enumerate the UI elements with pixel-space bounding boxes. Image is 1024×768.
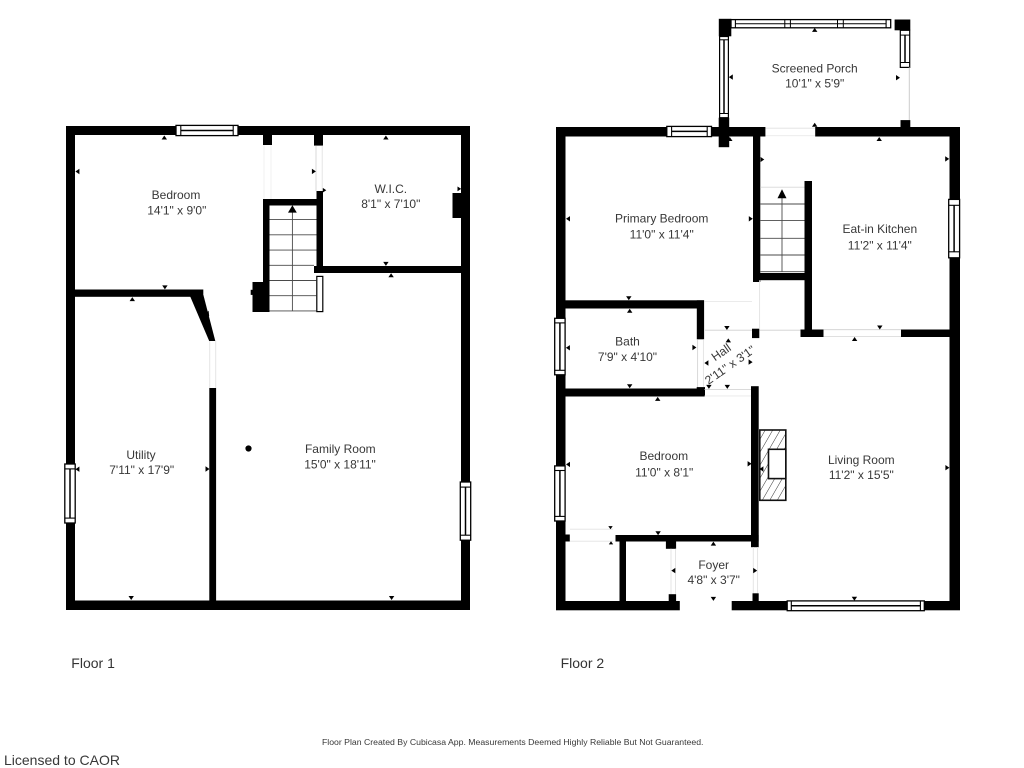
svg-text:Floor 2: Floor 2 <box>561 655 605 671</box>
svg-text:Licensed to CAOR: Licensed to CAOR <box>4 752 120 768</box>
svg-text:15'0" x 18'11": 15'0" x 18'11" <box>304 458 376 472</box>
svg-text:Bedroom: Bedroom <box>152 188 201 202</box>
svg-text:4'8" x 3'7": 4'8" x 3'7" <box>687 573 739 587</box>
svg-text:7'9" x 4'10": 7'9" x 4'10" <box>598 350 657 364</box>
svg-text:11'0" x 8'1": 11'0" x 8'1" <box>635 465 693 479</box>
svg-text:Floor 1: Floor 1 <box>71 655 115 671</box>
svg-text:Eat-in Kitchen: Eat-in Kitchen <box>842 222 917 236</box>
svg-text:Family Room: Family Room <box>305 442 376 456</box>
svg-text:14'1" x 9'0": 14'1" x 9'0" <box>147 204 206 218</box>
svg-text:Primary Bedroom: Primary Bedroom <box>615 212 708 226</box>
svg-text:Bath: Bath <box>615 334 640 348</box>
svg-text:Foyer: Foyer <box>698 558 729 572</box>
svg-text:10'1" x 5'9": 10'1" x 5'9" <box>785 77 844 91</box>
svg-text:11'0" x 11'4": 11'0" x 11'4" <box>630 227 694 241</box>
svg-text:Floor Plan Created By Cubicasa: Floor Plan Created By Cubicasa App. Meas… <box>322 737 703 747</box>
svg-text:Bedroom: Bedroom <box>639 449 688 463</box>
svg-text:11'2" x 15'5": 11'2" x 15'5" <box>829 468 894 482</box>
svg-text:W.I.C.: W.I.C. <box>374 182 407 196</box>
svg-text:Living Room: Living Room <box>828 453 895 467</box>
svg-text:7'11" x 17'9": 7'11" x 17'9" <box>109 463 174 477</box>
svg-text:Screened Porch: Screened Porch <box>772 61 858 75</box>
svg-text:11'2" x 11'4": 11'2" x 11'4" <box>848 239 912 253</box>
svg-text:8'1" x 7'10": 8'1" x 7'10" <box>361 197 420 211</box>
svg-text:Utility: Utility <box>126 448 155 462</box>
